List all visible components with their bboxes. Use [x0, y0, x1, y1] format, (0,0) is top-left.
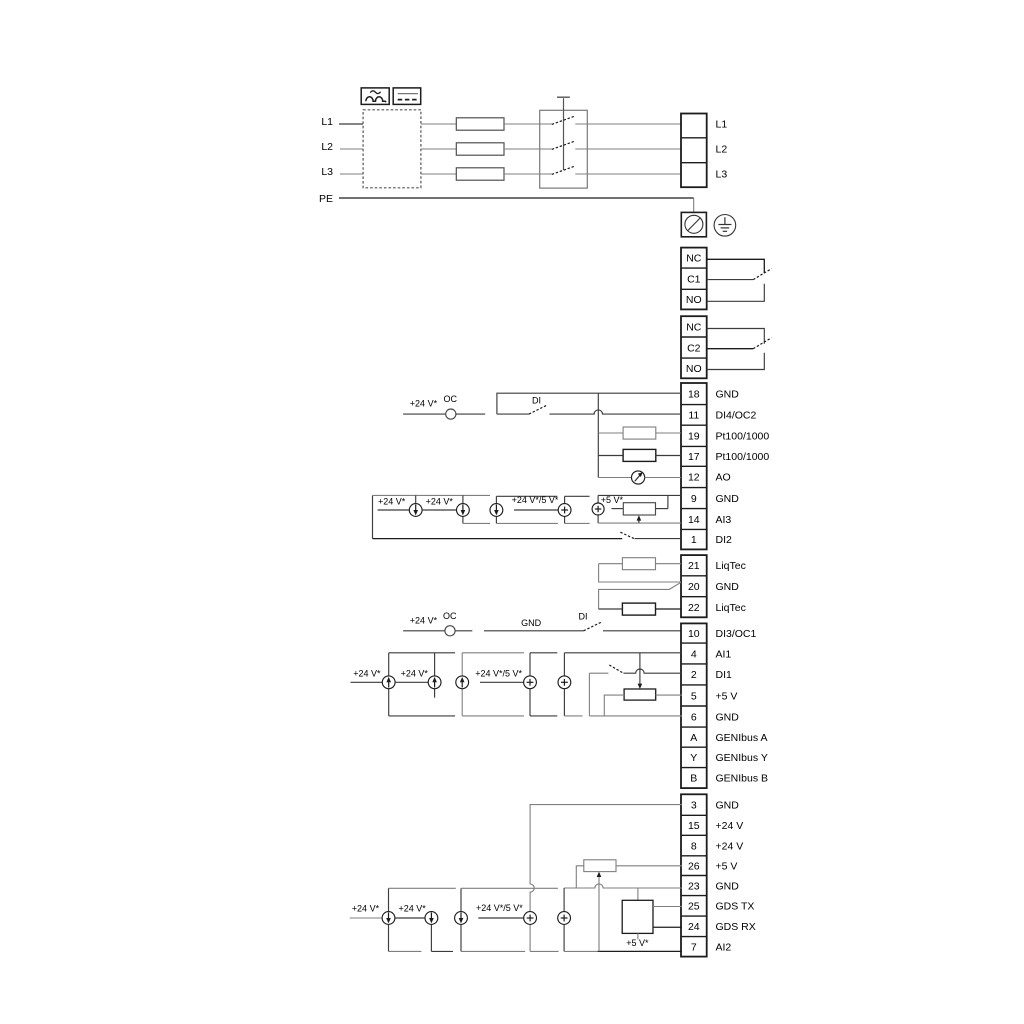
- svg-text:GENIbus B: GENIbus B: [716, 773, 769, 785]
- svg-text:DI3/OC1: DI3/OC1: [716, 628, 757, 640]
- svg-text:GND: GND: [716, 493, 740, 505]
- svg-text:GENIbus Y: GENIbus Y: [716, 752, 768, 764]
- svg-text:B: B: [690, 773, 697, 785]
- svg-text:A: A: [690, 732, 697, 744]
- svg-text:L2: L2: [716, 144, 728, 156]
- svg-text:NC: NC: [686, 253, 702, 265]
- svg-text:DI4/OC2: DI4/OC2: [716, 410, 757, 422]
- svg-text:+24 V*: +24 V*: [399, 904, 427, 914]
- svg-text:Y: Y: [690, 752, 697, 764]
- svg-text:GDS TX: GDS TX: [716, 901, 755, 913]
- svg-text:PE: PE: [319, 193, 333, 205]
- svg-text:+24 V*: +24 V*: [352, 904, 380, 914]
- svg-text:L1: L1: [716, 119, 728, 131]
- svg-text:L2: L2: [321, 141, 333, 153]
- svg-text:+5 V: +5 V: [716, 860, 738, 872]
- svg-text:4: 4: [691, 648, 697, 660]
- svg-text:L3: L3: [321, 166, 333, 178]
- svg-text:1: 1: [691, 534, 697, 546]
- svg-text:GND: GND: [716, 800, 740, 812]
- svg-text:+24 V: +24 V: [716, 840, 744, 852]
- svg-text:5: 5: [691, 690, 697, 702]
- svg-text:+24 V*/5 V*: +24 V*/5 V*: [512, 495, 559, 505]
- svg-text:C2: C2: [687, 342, 701, 354]
- svg-text:LiqTec: LiqTec: [716, 602, 746, 614]
- svg-text:AI2: AI2: [716, 941, 732, 953]
- svg-text:14: 14: [688, 514, 700, 526]
- svg-text:Pt100/1000: Pt100/1000: [716, 451, 770, 463]
- svg-text:+24 V*: +24 V*: [401, 669, 429, 679]
- svg-text:GDS RX: GDS RX: [716, 921, 756, 933]
- svg-text:GND: GND: [716, 880, 740, 892]
- svg-text:21: 21: [688, 560, 700, 572]
- svg-text:2: 2: [691, 669, 697, 681]
- svg-text:7: 7: [691, 941, 697, 953]
- svg-text:AO: AO: [716, 472, 731, 484]
- svg-text:22: 22: [688, 602, 700, 614]
- svg-text:L1: L1: [321, 116, 333, 128]
- svg-text:8: 8: [691, 840, 697, 852]
- svg-text:GENIbus A: GENIbus A: [716, 732, 768, 744]
- svg-text:+24 V*: +24 V*: [410, 398, 438, 408]
- svg-text:3: 3: [691, 800, 697, 812]
- svg-text:+24 V*/5 V*: +24 V*/5 V*: [476, 903, 523, 913]
- svg-text:GND: GND: [716, 389, 740, 401]
- svg-text:NO: NO: [686, 294, 702, 306]
- svg-text:9: 9: [691, 493, 697, 505]
- svg-text:GND: GND: [716, 711, 740, 723]
- svg-text:+24 V*: +24 V*: [426, 496, 454, 506]
- svg-text:GND: GND: [716, 581, 740, 593]
- svg-text:+24 V*: +24 V*: [353, 669, 381, 679]
- svg-text:+5 V: +5 V: [716, 690, 738, 702]
- svg-text:NC: NC: [686, 321, 702, 333]
- svg-text:OC: OC: [443, 611, 457, 621]
- svg-text:15: 15: [688, 820, 700, 832]
- svg-text:OC: OC: [444, 394, 458, 404]
- svg-text:+24 V: +24 V: [716, 820, 744, 832]
- svg-text:DI1: DI1: [716, 669, 733, 681]
- svg-text:25: 25: [688, 901, 700, 913]
- svg-text:26: 26: [688, 860, 700, 872]
- svg-text:DI: DI: [579, 611, 588, 621]
- svg-text:GND: GND: [521, 618, 542, 628]
- svg-text:+24 V*/5 V*: +24 V*/5 V*: [475, 669, 522, 679]
- svg-text:+24 V*: +24 V*: [410, 616, 438, 626]
- svg-text:18: 18: [688, 389, 700, 401]
- svg-text:AI3: AI3: [716, 514, 732, 526]
- svg-text:17: 17: [688, 451, 700, 463]
- svg-text:L3: L3: [716, 169, 728, 181]
- svg-text:+5 V*: +5 V*: [601, 495, 624, 505]
- svg-text:10: 10: [688, 628, 700, 640]
- svg-text:C1: C1: [687, 273, 701, 285]
- svg-text:19: 19: [688, 431, 700, 443]
- svg-text:DI2: DI2: [716, 534, 733, 546]
- svg-text:20: 20: [688, 581, 700, 593]
- svg-text:LiqTec: LiqTec: [716, 560, 746, 572]
- svg-text:23: 23: [688, 880, 700, 892]
- svg-text:11: 11: [688, 410, 699, 422]
- svg-text:AI1: AI1: [716, 648, 732, 660]
- svg-text:+24 V*: +24 V*: [378, 496, 406, 506]
- svg-text:DI: DI: [532, 396, 541, 406]
- svg-text:12: 12: [688, 472, 700, 484]
- svg-text:+5 V*: +5 V*: [626, 938, 649, 948]
- svg-text:24: 24: [688, 921, 700, 933]
- svg-text:6: 6: [691, 711, 697, 723]
- svg-text:Pt100/1000: Pt100/1000: [716, 431, 770, 443]
- svg-text:NO: NO: [686, 363, 702, 375]
